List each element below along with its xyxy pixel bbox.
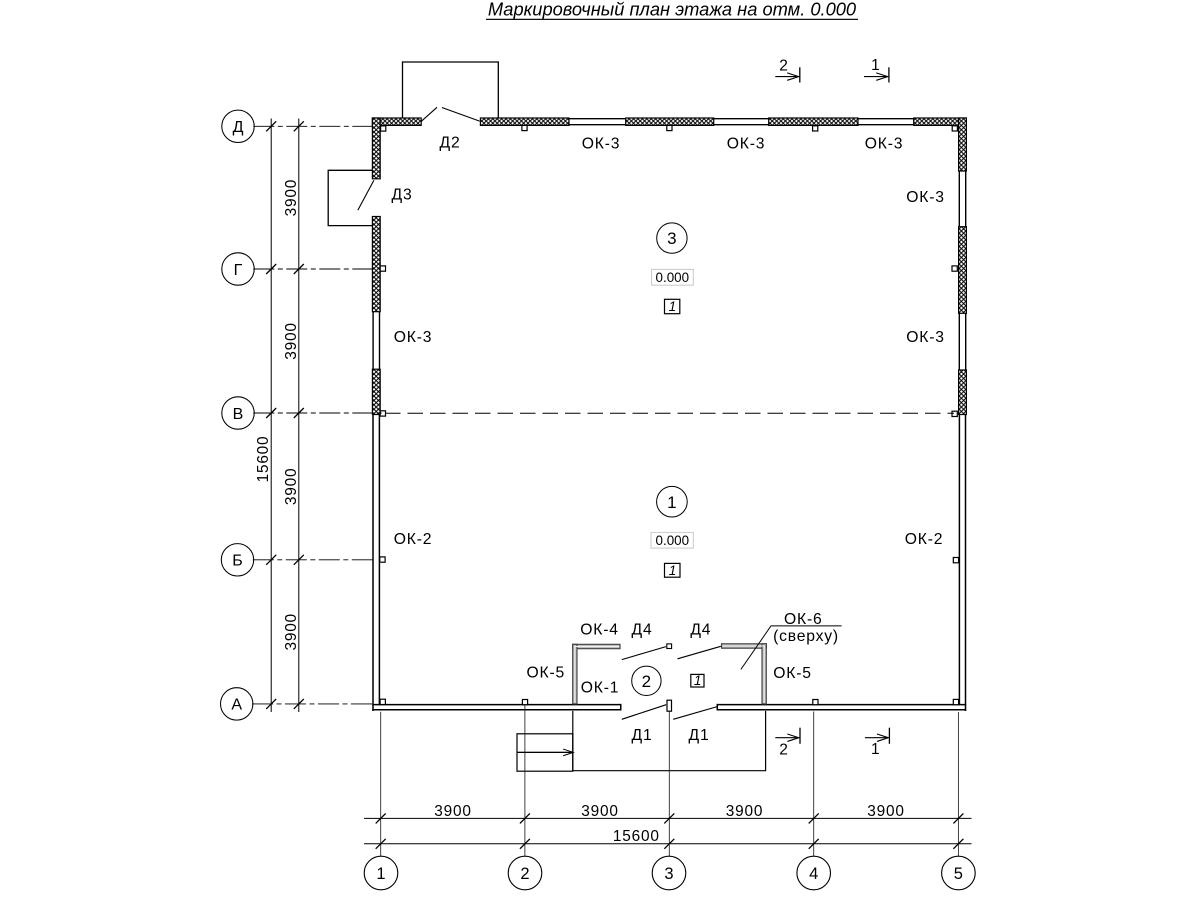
svg-text:15600: 15600 bbox=[613, 828, 660, 845]
svg-text:2: 2 bbox=[642, 672, 651, 691]
svg-text:ОК-2: ОК-2 bbox=[394, 531, 433, 548]
svg-text:Д4: Д4 bbox=[690, 622, 711, 639]
svg-text:Г: Г bbox=[234, 262, 243, 279]
svg-text:3900: 3900 bbox=[283, 322, 300, 359]
svg-text:Д3: Д3 bbox=[392, 187, 413, 204]
svg-text:3900: 3900 bbox=[434, 803, 471, 820]
svg-text:2: 2 bbox=[779, 57, 788, 74]
svg-text:ОК-3: ОК-3 bbox=[865, 136, 904, 153]
svg-text:2: 2 bbox=[779, 741, 788, 758]
svg-text:0.000: 0.000 bbox=[656, 270, 690, 285]
svg-text:Д2: Д2 bbox=[440, 135, 461, 152]
svg-text:3: 3 bbox=[664, 865, 673, 883]
svg-text:5: 5 bbox=[954, 865, 963, 883]
svg-text:0.000: 0.000 bbox=[656, 533, 690, 548]
svg-text:В: В bbox=[233, 406, 244, 423]
svg-text:ОК-3: ОК-3 bbox=[906, 329, 945, 346]
svg-text:ОК-5: ОК-5 bbox=[773, 665, 812, 682]
svg-text:1: 1 bbox=[669, 299, 677, 314]
svg-text:3900: 3900 bbox=[581, 803, 618, 820]
svg-text:Д: Д bbox=[233, 119, 244, 136]
svg-text:ОК-2: ОК-2 bbox=[905, 531, 944, 548]
svg-text:ОК-3: ОК-3 bbox=[394, 329, 433, 346]
svg-text:2: 2 bbox=[520, 865, 529, 883]
svg-text:А: А bbox=[231, 697, 242, 714]
svg-text:ОК-4: ОК-4 bbox=[580, 622, 619, 639]
svg-text:3900: 3900 bbox=[283, 468, 300, 505]
svg-text:ОК-1: ОК-1 bbox=[581, 680, 620, 697]
svg-text:15600: 15600 bbox=[255, 436, 272, 483]
svg-text:3900: 3900 bbox=[726, 803, 763, 820]
svg-text:Д1: Д1 bbox=[689, 727, 710, 744]
svg-text:3: 3 bbox=[667, 229, 676, 248]
svg-text:1: 1 bbox=[667, 493, 676, 512]
svg-text:3900: 3900 bbox=[283, 613, 300, 650]
svg-text:1: 1 bbox=[376, 865, 385, 883]
svg-text:ОК-6: ОК-6 bbox=[784, 611, 823, 628]
svg-text:ОК-5: ОК-5 bbox=[527, 664, 566, 681]
svg-text:3900: 3900 bbox=[867, 803, 904, 820]
svg-text:Д4: Д4 bbox=[632, 622, 653, 639]
svg-text:1: 1 bbox=[871, 57, 880, 74]
svg-text:1: 1 bbox=[669, 563, 677, 578]
svg-text:Б: Б bbox=[232, 553, 243, 570]
svg-text:4: 4 bbox=[809, 865, 818, 883]
svg-text:3900: 3900 bbox=[283, 179, 300, 216]
svg-text:ОК-3: ОК-3 bbox=[906, 189, 945, 206]
svg-text:Д1: Д1 bbox=[632, 727, 653, 744]
svg-text:1: 1 bbox=[871, 741, 880, 758]
svg-text:1: 1 bbox=[694, 673, 702, 688]
svg-text:(сверху): (сверху) bbox=[773, 628, 839, 645]
svg-text:ОК-3: ОК-3 bbox=[727, 136, 766, 153]
svg-text:ОК-3: ОК-3 bbox=[582, 136, 621, 153]
svg-text:Маркировочный план этажа на от: Маркировочный план этажа на отм. 0.000 bbox=[488, 0, 857, 20]
